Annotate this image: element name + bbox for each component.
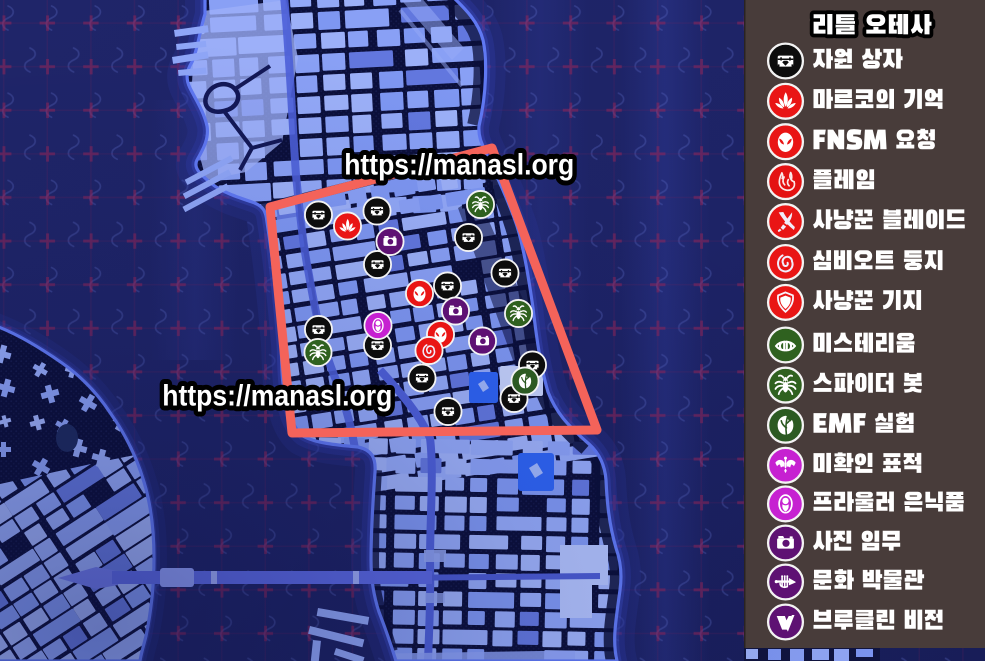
svg-text:https://manasl.org: https://manasl.org: [162, 379, 392, 413]
svg-text:https://manasl.org: https://manasl.org: [344, 148, 574, 182]
